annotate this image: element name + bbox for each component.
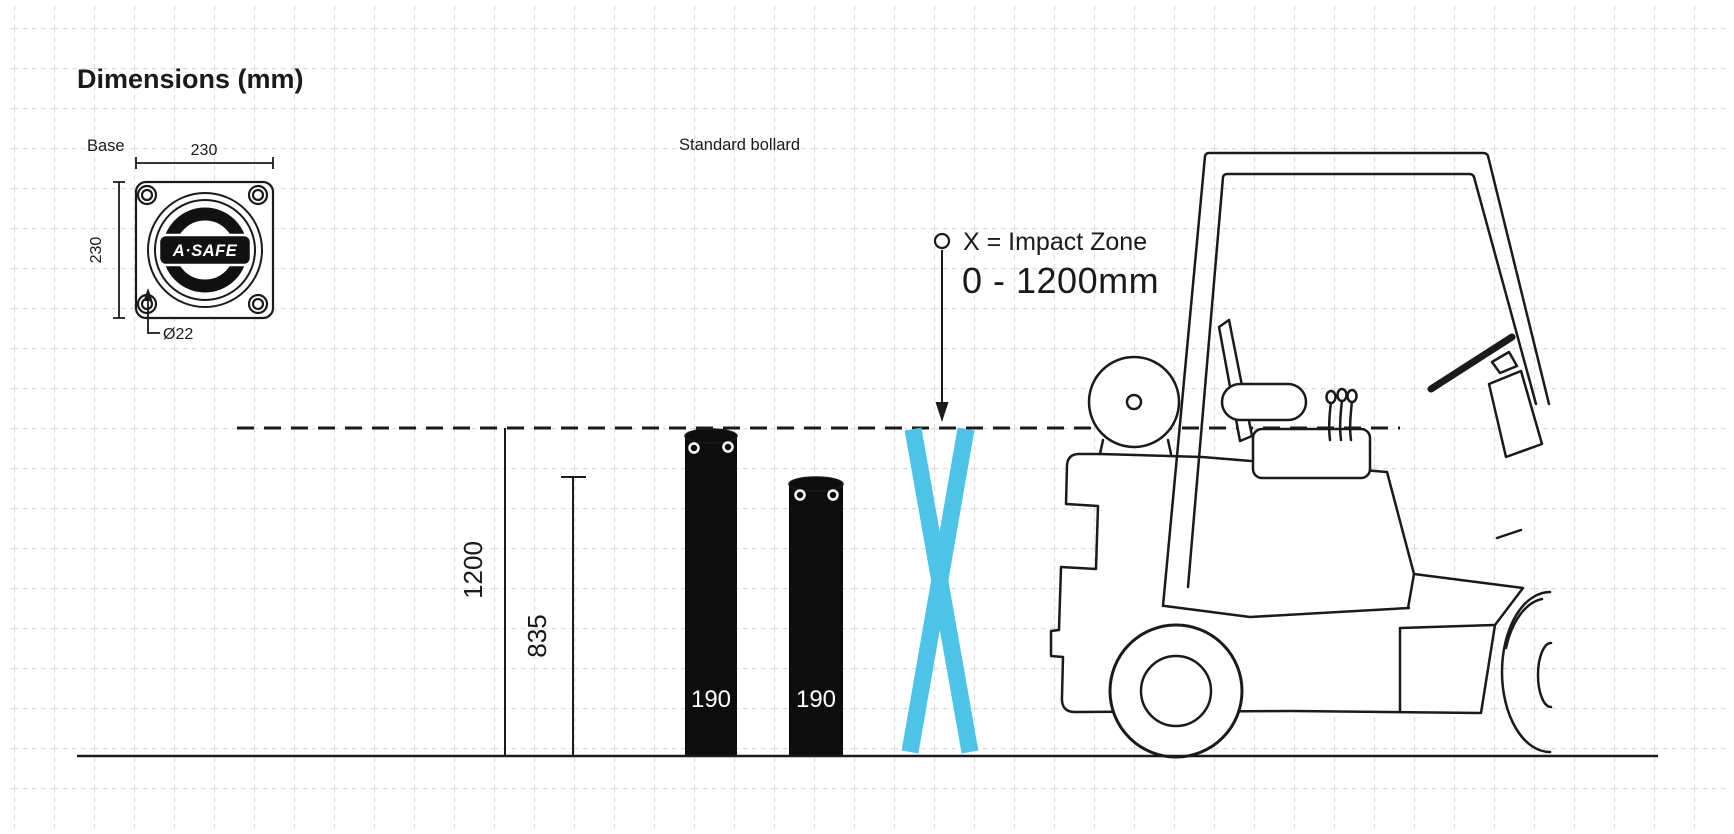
base-label: Base [87,137,125,155]
base-height-value: 230 [88,237,105,264]
diagram-canvas: A·SAFE 230 230 Ø22 Base Dimensions (mm) … [0,0,1734,834]
lever-knob [1348,390,1357,402]
height-835-value: 835 [522,614,552,657]
asafe-logo-text: A·SAFE [172,242,238,260]
base-hole-diameter-value: Ø22 [163,326,193,343]
page-title: Dimensions (mm) [77,64,304,94]
front-wheel-hub [1141,656,1211,726]
dimensions-diagram: A·SAFE 230 230 Ø22 Base Dimensions (mm) … [0,0,1734,834]
bollard-cap [685,429,737,443]
bollard-cap [789,477,843,491]
bollard-diameter-value: 190 [796,686,836,713]
base-width-value: 230 [191,142,218,159]
legend-marker-icon [935,234,949,248]
impact-zone-range: 0 - 1200mm [962,260,1159,301]
lever-knob [1327,391,1336,403]
filter-disc [1089,357,1179,447]
height-1200-value: 1200 [458,541,488,599]
seat-armrest [1222,384,1306,420]
impact-zone-title: X = Impact Zone [963,228,1147,256]
standard-bollard-label: Standard bollard [679,136,800,154]
seat-base [1253,429,1370,478]
bollard-short [789,477,843,756]
lever-knob [1338,389,1347,401]
bollard-diameter-value: 190 [691,686,731,713]
